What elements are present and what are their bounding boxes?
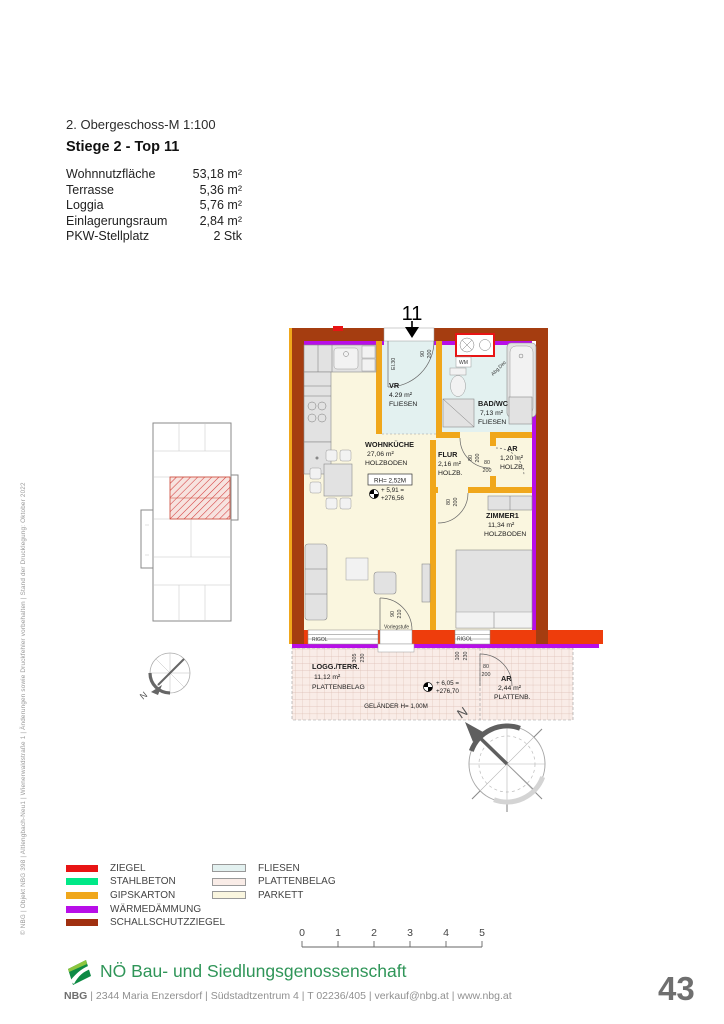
key-plan: N xyxy=(125,415,265,715)
dim: 90 xyxy=(390,611,396,617)
partition-bath-bottom xyxy=(442,432,460,438)
exterior-wall-right xyxy=(536,328,548,630)
room-area: 7,13 m² xyxy=(480,410,504,417)
insulation-top-left xyxy=(304,341,384,345)
room-name: AR xyxy=(507,444,518,453)
dim: 230 xyxy=(463,652,469,661)
spec-table: Wohnnutzfläche 53,18 m² Terrasse 5,36 m²… xyxy=(66,167,242,245)
spec-row: Terrasse 5,36 m² xyxy=(66,183,242,199)
legend-item: SCHALLSCHUTZZIEGEL xyxy=(66,919,225,927)
dim: 200 xyxy=(483,468,492,474)
room-area: 11,12 m² xyxy=(314,674,341,681)
copyright-side-note: © NBG | Objekt NBG 398 | Altlengbach-Neu… xyxy=(20,379,27,935)
legend-label: ZIEGEL xyxy=(110,863,146,874)
schallschutzziegel-swatch xyxy=(66,919,98,926)
loggia-door-opening xyxy=(380,630,412,644)
wc-cistern xyxy=(450,368,466,375)
unit-title: Stiege 2 - Top 11 xyxy=(66,139,179,155)
legend-item: FLIESEN xyxy=(212,864,300,872)
wm-label: WM xyxy=(459,360,468,366)
legend-label: STAHLBETON xyxy=(110,876,176,887)
spec-value: 53,18 m² xyxy=(193,167,242,183)
level-benchmark-icon xyxy=(424,683,433,692)
waermedaemmung-swatch xyxy=(66,906,98,913)
chair xyxy=(340,450,351,461)
room-floor: HOLZB. xyxy=(438,470,463,477)
chair xyxy=(326,498,337,509)
spec-label: Wohnnutzfläche xyxy=(66,167,155,183)
spec-row: Wohnnutzfläche 53,18 m² xyxy=(66,167,242,183)
armchair xyxy=(374,572,396,594)
level-value: + 6,05 = xyxy=(436,680,459,687)
partition-vr-bath xyxy=(436,341,442,438)
entry-step xyxy=(378,644,414,652)
dim: 305 xyxy=(352,654,358,663)
partition-vr-left xyxy=(376,341,382,434)
key-plan-compass: N xyxy=(138,653,190,702)
stahlbeton-swatch xyxy=(66,878,98,885)
room-name: AR xyxy=(501,674,512,683)
legend-label: FLIESEN xyxy=(258,863,300,874)
spec-label: Einlagerungsraum xyxy=(66,214,167,230)
room-floor: FLIESEN xyxy=(389,401,417,408)
coffee-table xyxy=(346,558,368,580)
room-name: WOHNKÜCHE xyxy=(365,440,414,449)
level-value: + 5,91 = xyxy=(381,487,404,494)
level-absolute: +276,56 xyxy=(381,495,404,502)
exterior-wall-left xyxy=(292,328,304,644)
scale-tick-label: 5 xyxy=(479,927,485,939)
floor-plan: WM 11 xyxy=(288,296,618,728)
ziegel-swatch xyxy=(66,865,98,872)
step-note: Vorlegstufe xyxy=(384,625,409,631)
dim: 100 xyxy=(455,652,461,661)
spec-row: PKW-Stellplatz 2 Stk xyxy=(66,229,242,245)
room-area: 2,16 m² xyxy=(438,461,462,468)
door-type-note: El.30 xyxy=(391,358,397,370)
chair xyxy=(326,450,337,461)
legend-item: GIPSKARTON xyxy=(66,891,175,899)
dim: 80 xyxy=(468,455,474,461)
company-name: NÖ Bau- und Siedlungsgenossenschaft xyxy=(100,961,406,982)
key-plan-building xyxy=(141,423,238,621)
room-area: 4.29 m² xyxy=(389,392,413,399)
parkett-swatch xyxy=(212,891,246,899)
dim: 200 xyxy=(453,498,459,507)
room-area: 11,34 m² xyxy=(488,522,515,529)
dim: 200 xyxy=(427,350,433,359)
nbg-logo-icon xyxy=(64,957,94,987)
chair xyxy=(340,498,351,509)
legend-item: STAHLBETON xyxy=(66,878,176,886)
brand-abbrev: NBG xyxy=(64,990,87,1002)
spec-row: Einlagerungsraum 2,84 m² xyxy=(66,214,242,230)
spec-value: 5,36 m² xyxy=(200,183,242,199)
north-label: N xyxy=(138,690,149,702)
partition-flur-left xyxy=(430,440,436,487)
room-name: ZIMMER1 xyxy=(486,511,519,520)
partition-zimmer-top xyxy=(430,487,438,493)
document-page: © NBG | Objekt NBG 398 | Altlengbach-Neu… xyxy=(0,0,724,1024)
dim: 210 xyxy=(397,610,403,619)
spec-label: Terrasse xyxy=(66,183,114,199)
chair xyxy=(310,468,321,479)
legend-label: GIPSKARTON xyxy=(110,890,175,901)
legend-label: PLATTENBELAG xyxy=(258,876,336,887)
scale-tick-label: 3 xyxy=(407,927,413,939)
plan-title: 2. Obergeschoss-M 1:100 xyxy=(66,117,216,132)
insulation-bottom xyxy=(292,644,599,648)
legend-item: WÄRMEDÄMMUNG xyxy=(66,905,201,913)
tv-board xyxy=(422,564,430,602)
spec-value: 2 Stk xyxy=(214,229,243,245)
dim: 80 xyxy=(446,499,452,505)
sofa xyxy=(305,544,327,620)
fliesen-swatch xyxy=(212,864,246,872)
room-floor: HOLZB. xyxy=(500,464,525,471)
washbasin-zone xyxy=(456,334,494,356)
room-floor: HOLZBODEN xyxy=(365,460,407,467)
spec-label: Loggia xyxy=(66,198,104,214)
dim: 90 xyxy=(420,351,426,357)
legend-item: PARKETT xyxy=(212,891,303,899)
chair xyxy=(310,482,321,493)
partition-zimmer-left xyxy=(430,493,436,630)
legend-item: PLATTENBELAG xyxy=(212,878,336,886)
plattenbelag-swatch xyxy=(212,878,246,886)
scale-tick-label: 0 xyxy=(299,927,305,939)
room-height: RH= 2,52M xyxy=(374,478,406,485)
rigol-note: RIGOL xyxy=(457,637,473,643)
room-area: 1,20 m² xyxy=(500,455,524,462)
railing-note: GELÄNDER H= 1,00M xyxy=(364,702,428,710)
room-floor: FLIESEN xyxy=(478,419,506,426)
dim: 80 xyxy=(483,664,489,670)
north-label: N xyxy=(454,704,470,722)
legend-item: ZIEGEL xyxy=(66,864,146,872)
legend-label: PARKETT xyxy=(258,890,303,901)
footer-contact: NBG | 2344 Maria Enzersdorf | Südstadtze… xyxy=(64,990,512,1002)
page-number: 43 xyxy=(658,970,695,1008)
spec-row: Loggia 5,76 m² xyxy=(66,198,242,214)
spec-label: PKW-Stellplatz xyxy=(66,229,149,245)
legend-label: WÄRMEDÄMMUNG xyxy=(110,904,201,915)
bath-cabinet xyxy=(509,397,532,424)
dim: 230 xyxy=(360,654,366,663)
kitchen-sink xyxy=(334,348,358,369)
room-area: 2,44 m² xyxy=(498,685,522,692)
level-benchmark-icon xyxy=(370,490,379,499)
room-area: 27,06 m² xyxy=(367,451,395,458)
room-floor: PLATTENBELAG xyxy=(312,684,365,691)
dim: 80 xyxy=(484,460,490,466)
scale-tick-label: 1 xyxy=(335,927,341,939)
partition-ar-left xyxy=(490,438,496,446)
dining-table xyxy=(324,464,352,496)
compass-rose: N xyxy=(435,700,575,830)
contact-details: | 2344 Maria Enzersdorf | Südstadtzentru… xyxy=(87,990,511,1002)
room-name: BAD/WC xyxy=(478,399,509,408)
rigol-note: RIGOL xyxy=(312,637,328,643)
spec-value: 2,84 m² xyxy=(200,214,242,230)
wc-toilet xyxy=(451,376,466,397)
room-floor: HOLZBODEN xyxy=(484,531,526,538)
level-absolute: +276,70 xyxy=(436,688,459,695)
scale-tick-label: 4 xyxy=(443,927,449,939)
legend-label: SCHALLSCHUTZZIEGEL xyxy=(110,917,225,928)
dim: 200 xyxy=(475,454,481,463)
room-name: FLUR xyxy=(438,450,458,459)
scale-tick-label: 2 xyxy=(371,927,377,939)
scale-bar: 0 1 2 3 4 5 xyxy=(294,924,494,954)
room-name: VR xyxy=(389,381,400,390)
gipskarton-swatch xyxy=(66,892,98,899)
dim: 200 xyxy=(482,672,491,678)
spec-value: 5,76 m² xyxy=(200,198,242,214)
